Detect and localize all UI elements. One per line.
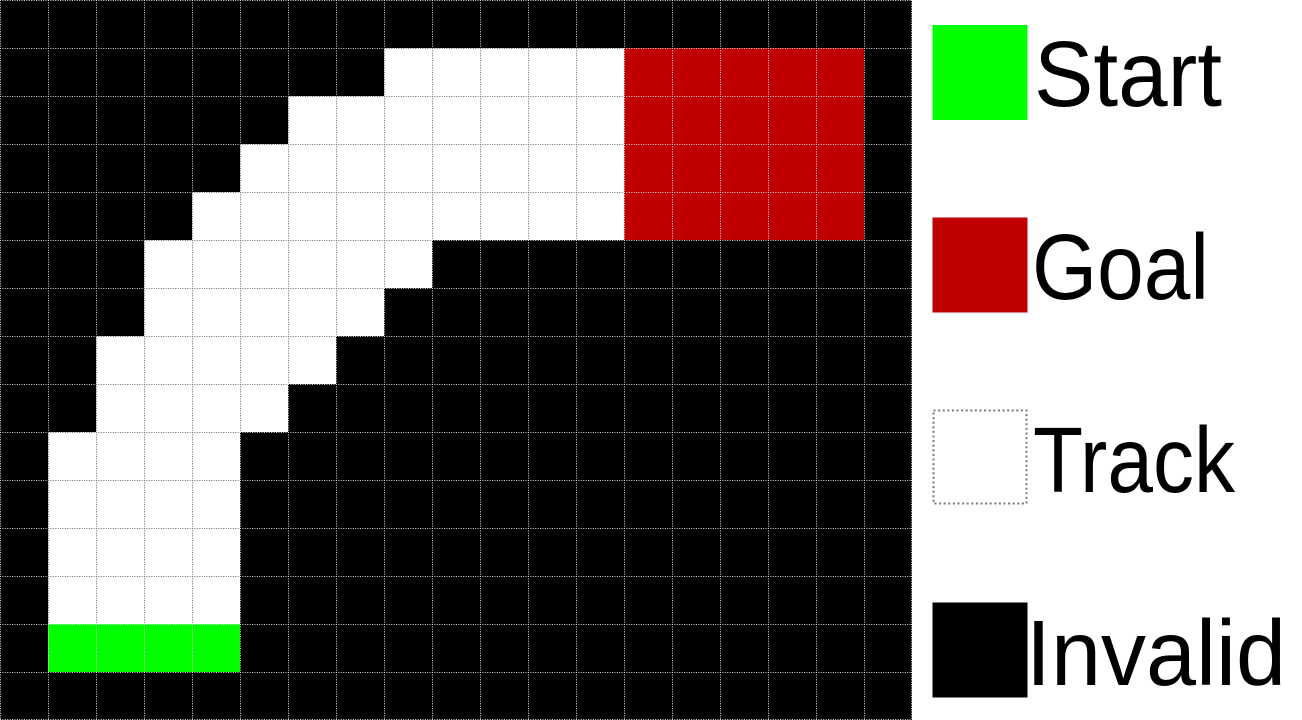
svg-text:Start: Start: [1034, 22, 1222, 126]
svg-text:Invalid: Invalid: [1026, 601, 1286, 705]
svg-text:Track: Track: [1033, 408, 1235, 512]
svg-text:Goal: Goal: [1032, 215, 1209, 319]
